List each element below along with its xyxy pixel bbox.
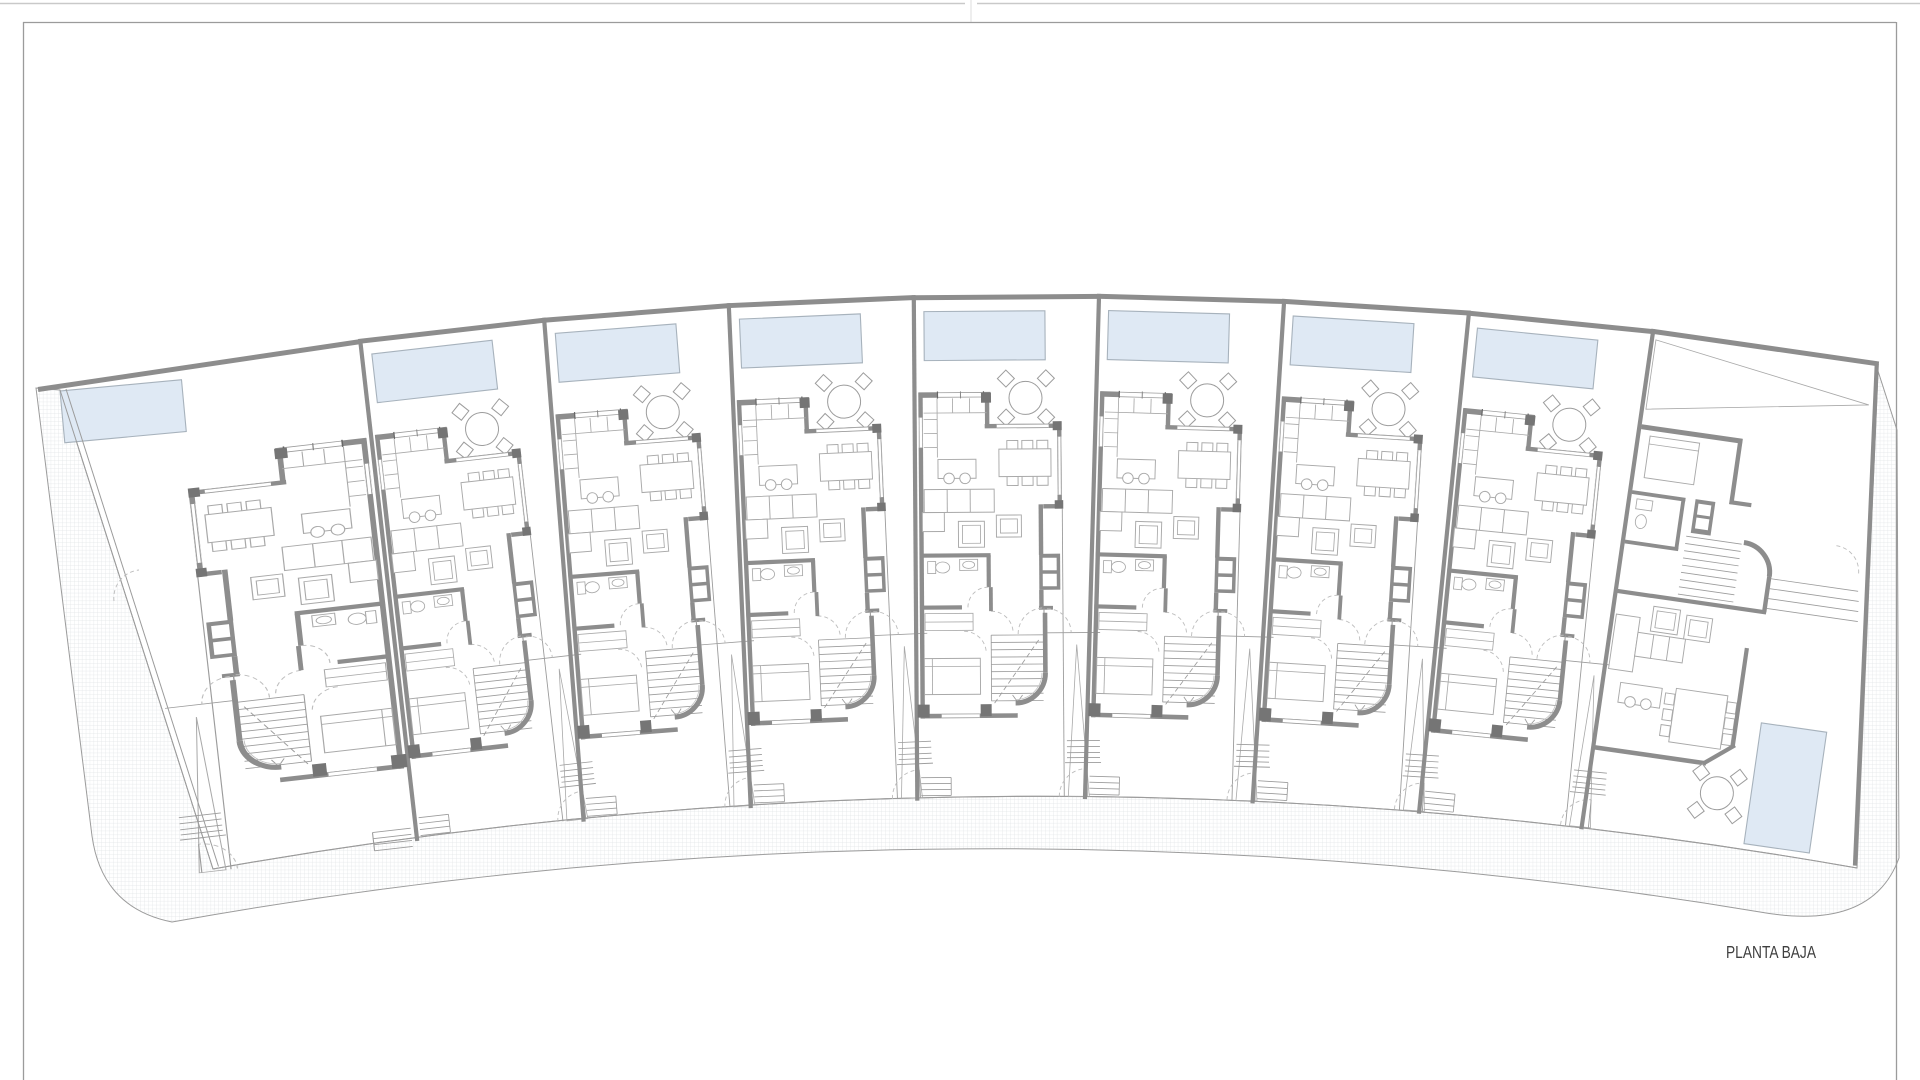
svg-text:PLANTA BAJA: PLANTA BAJA: [1726, 942, 1816, 962]
